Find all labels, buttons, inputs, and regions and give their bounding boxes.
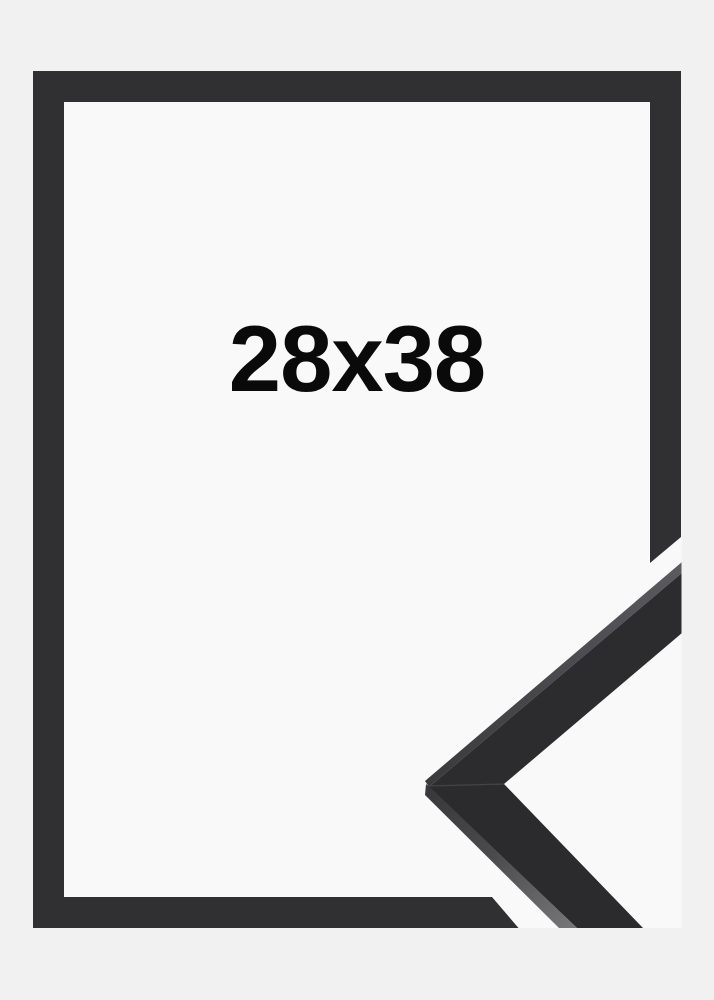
product-image: 28x38 [0,0,714,1000]
frame-backdrop [64,102,682,928]
frame-illustration [0,0,714,1000]
size-label: 28x38 [0,312,714,406]
